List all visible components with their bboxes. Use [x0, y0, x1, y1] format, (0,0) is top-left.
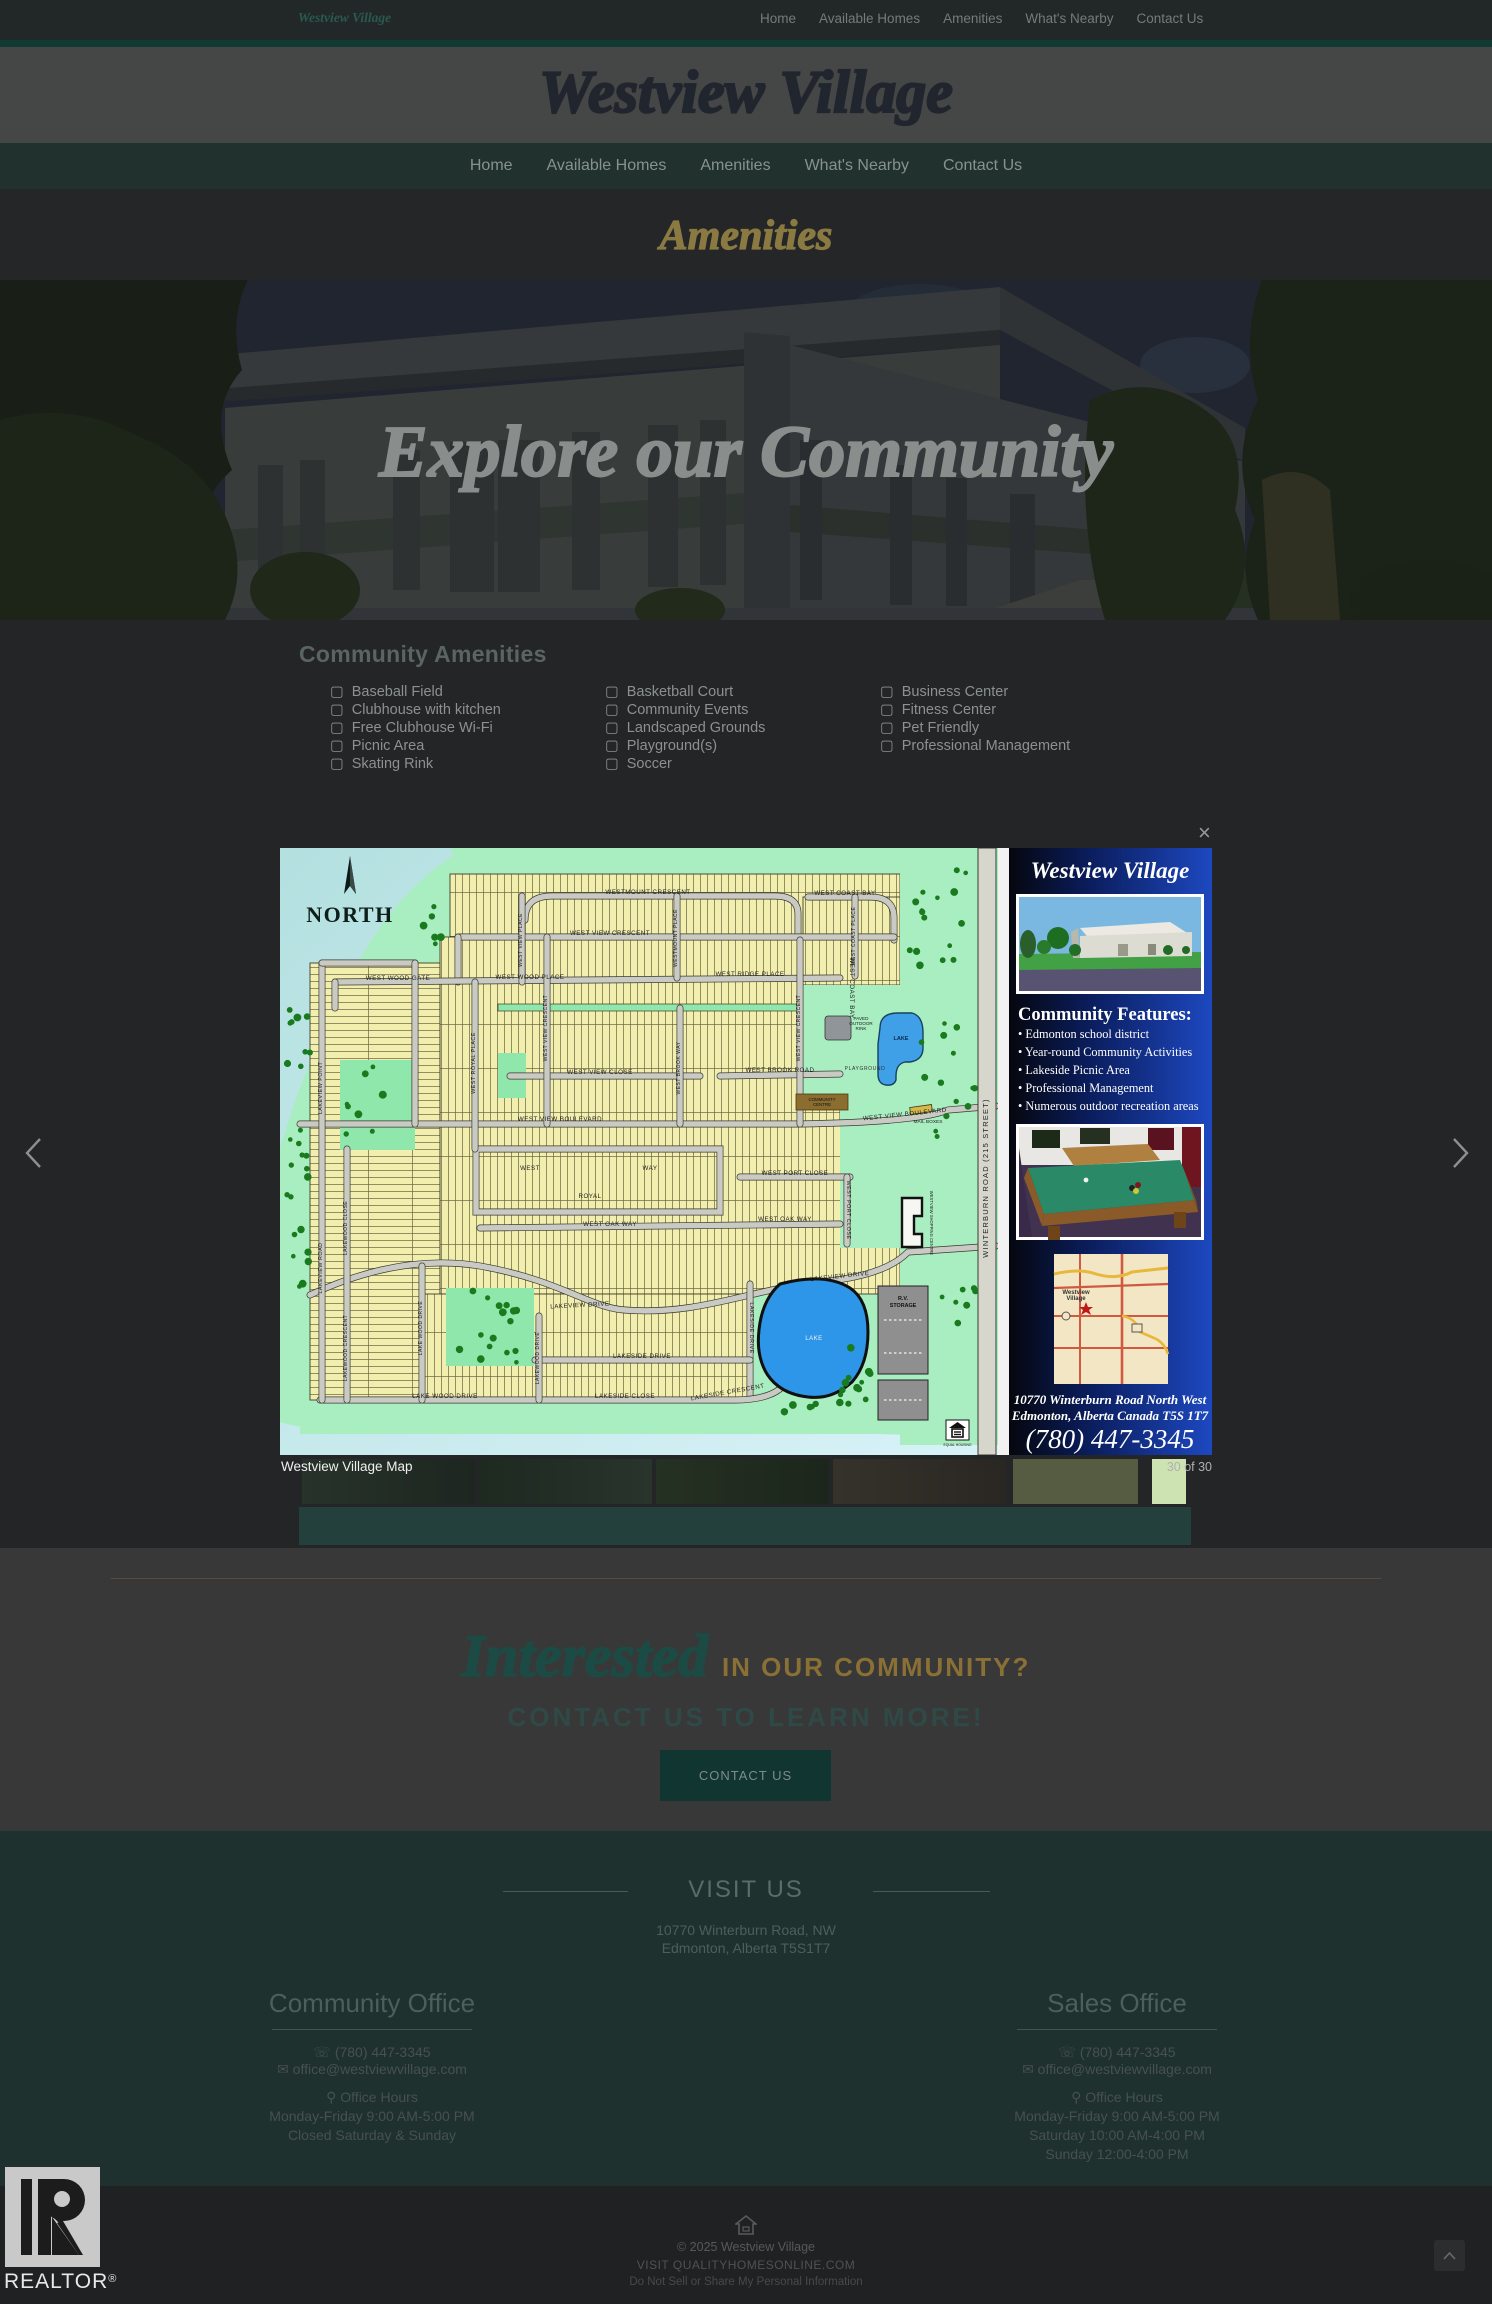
svg-text:WEST BROOK WAY: WEST BROOK WAY [676, 1041, 682, 1094]
svg-text:WEST ROYAL PLACE: WEST ROYAL PLACE [471, 1032, 477, 1094]
svg-text:• Year-round Community Activit: • Year-round Community Activities [1018, 1045, 1192, 1059]
svg-text:LAKE WOOD DRIVE: LAKE WOOD DRIVE [418, 1301, 424, 1356]
svg-text:WESTMOUNT PLACE: WESTMOUNT PLACE [673, 909, 679, 967]
svg-text:• Numerous outdoor recreation: • Numerous outdoor recreation areas [1018, 1099, 1199, 1113]
svg-text:Westview Village: Westview Village [1031, 858, 1190, 883]
svg-text:(780) 447-3345: (780) 447-3345 [1026, 1424, 1195, 1454]
svg-text:R.V.: R.V. [898, 1296, 908, 1302]
svg-text:WEST WOOD GATE: WEST WOOD GATE [366, 975, 431, 982]
svg-text:• Edmonton school district: • Edmonton school district [1018, 1027, 1150, 1041]
svg-text:WEST VIEW CLOSE: WEST VIEW CLOSE [567, 1069, 633, 1076]
svg-text:• Lakeside Picnic Area: • Lakeside Picnic Area [1018, 1063, 1130, 1077]
svg-text:WINTERBURN ROAD (215 STREET): WINTERBURN ROAD (215 STREET) [981, 1098, 990, 1257]
svg-text:Edmonton, Alberta Canada T5S 1: Edmonton, Alberta Canada T5S 1T7 [1011, 1408, 1209, 1423]
svg-text:Village: Village [1066, 1296, 1086, 1302]
svg-text:WEST PORT CLOSE: WEST PORT CLOSE [845, 1180, 851, 1239]
svg-text:LAKESIDE DRIVE: LAKESIDE DRIVE [748, 1302, 754, 1353]
svg-text:WEST COAST BAY: WEST COAST BAY [814, 890, 875, 897]
svg-text:LAKESIDE DRIVE: LAKESIDE DRIVE [613, 1353, 671, 1360]
svg-text:WEST WOOD PLACE: WEST WOOD PLACE [496, 974, 565, 981]
svg-text:LAKE: LAKE [805, 1336, 822, 1342]
svg-text:NORTH: NORTH [306, 902, 393, 927]
svg-text:WEST VIEW PLACE: WEST VIEW PLACE [518, 913, 524, 967]
svg-text:MAIL BOXES: MAIL BOXES [914, 1119, 943, 1125]
svg-text:WEST PORT CLOSE: WEST PORT CLOSE [762, 1170, 829, 1177]
svg-text:WAY: WAY [643, 1165, 658, 1172]
svg-text:LAKEVIEW ROAD: LAKEVIEW ROAD [318, 1242, 324, 1293]
svg-text:WEST: WEST [520, 1165, 540, 1172]
svg-text:WEST VIEW CRESCENT: WEST VIEW CRESCENT [570, 930, 650, 937]
svg-text:WEST BROOK ROAD: WEST BROOK ROAD [746, 1067, 815, 1074]
svg-text:LAKE WOOD DRIVE: LAKE WOOD DRIVE [412, 1393, 478, 1400]
svg-text:WEST OAK WAY: WEST OAK WAY [758, 1216, 812, 1223]
svg-text:LAKEVIEW POINT: LAKEVIEW POINT [318, 1062, 324, 1115]
svg-text:WEST RIDGE PLACE: WEST RIDGE PLACE [715, 971, 784, 978]
svg-text:WEST COAST PLACE: WEST COAST PLACE [851, 907, 857, 966]
svg-text:WEST VIEW CRESCENT: WEST VIEW CRESCENT [796, 995, 802, 1061]
svg-text:LAKEWOOD CLOSE: LAKEWOOD CLOSE [343, 1201, 349, 1255]
svg-text:LAKE: LAKE [894, 1036, 909, 1042]
svg-text:10770 Winterburn Road North We: 10770 Winterburn Road North West [1014, 1392, 1207, 1407]
svg-text:ROYAL: ROYAL [578, 1193, 601, 1200]
svg-text:WEST COAST BAY: WEST COAST BAY [848, 957, 855, 1018]
svg-text:WEST OAK WAY: WEST OAK WAY [583, 1221, 637, 1228]
svg-text:Explore our Community: Explore our Community [378, 411, 1114, 492]
svg-text:WEST VIEW BOULEVARD: WEST VIEW BOULEVARD [518, 1116, 602, 1123]
svg-text:EQUAL HOUSING: EQUAL HOUSING [943, 1443, 971, 1447]
svg-text:LAKEWOOD CRESCENT: LAKEWOOD CRESCENT [343, 1315, 349, 1381]
svg-text:• Professional Management: • Professional Management [1018, 1081, 1154, 1095]
svg-text:WESTVIEW SHOPPING CENTRE: WESTVIEW SHOPPING CENTRE [929, 1191, 934, 1256]
svg-text:PLAYGROUND: PLAYGROUND [845, 1066, 886, 1072]
svg-text:WESTMOUNT CRESCENT: WESTMOUNT CRESCENT [605, 889, 690, 896]
svg-text:CENTRE: CENTRE [813, 1102, 831, 1107]
svg-text:STORAGE: STORAGE [890, 1303, 917, 1309]
svg-text:LAKESIDE CLOSE: LAKESIDE CLOSE [595, 1393, 655, 1400]
svg-text:WEST VIEW CRESCENT: WEST VIEW CRESCENT [543, 995, 549, 1061]
svg-text:LAKEWOOD DRIVE: LAKEWOOD DRIVE [535, 1332, 541, 1385]
svg-text:Community Features:: Community Features: [1018, 1005, 1192, 1025]
svg-text:RINK: RINK [856, 1026, 868, 1031]
